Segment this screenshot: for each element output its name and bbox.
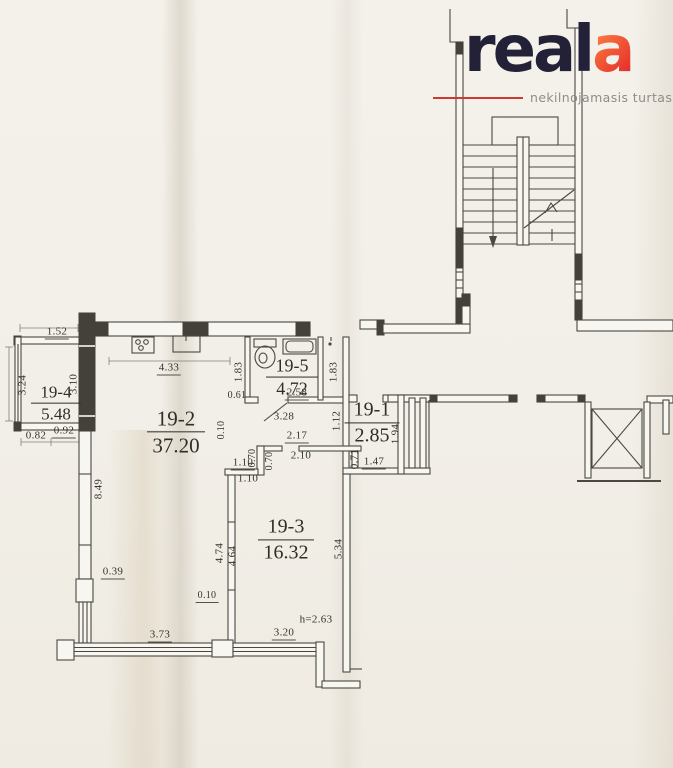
dim-label: 3.10 <box>69 374 80 394</box>
dim-label: 0.10 <box>196 591 219 603</box>
room-id: 19-3 <box>258 516 314 538</box>
exterior-window-walls <box>57 431 360 688</box>
logo-accent-letter: a <box>592 13 632 87</box>
reala-logo: reala <box>464 18 654 82</box>
dim-label: 0.82 <box>26 431 46 442</box>
dim-label: 1.52 <box>45 327 69 340</box>
dim-label: 0.39 <box>101 567 125 580</box>
fraction-bar <box>266 377 318 378</box>
logo-tagline: nekilnojamasis turtas <box>530 90 672 105</box>
fraction-bar <box>147 431 205 432</box>
room-area: 5.48 <box>31 406 81 424</box>
stair-direction-arrows <box>489 168 574 248</box>
room-area: 16.32 <box>258 542 314 564</box>
dim-label: 0.70 <box>265 452 275 471</box>
dim-label: 4.74 <box>215 543 226 563</box>
logo-tagline-row: nekilnojamasis turtas <box>433 90 643 105</box>
room-id: 19-2 <box>147 407 205 430</box>
room-label-19-2: 19-2 37.20 <box>147 407 205 456</box>
kitchen-sink-icon <box>173 336 200 352</box>
fraction-bar <box>258 539 314 540</box>
dim-label: 2.10 <box>291 451 311 462</box>
room-19-3-walls <box>228 474 362 672</box>
dim-label: h=2.63 <box>300 615 333 626</box>
room-area: 37.20 <box>147 434 205 457</box>
dim-label: 1.12 <box>332 411 343 431</box>
room-label-19-3: 19-3 16.32 <box>258 516 314 563</box>
dim-label: 0.61 <box>228 391 247 401</box>
room-id: 19-5 <box>266 357 318 376</box>
dim-label: 1.47 <box>362 457 386 470</box>
dim-label: 3.28 <box>274 412 294 423</box>
closet-mark <box>328 342 331 345</box>
wall <box>450 9 463 42</box>
dim-label: 0.92 <box>52 426 76 439</box>
dim-label: 5.34 <box>334 539 345 559</box>
tagline-rule <box>433 97 523 99</box>
dim-label: 3.20 <box>272 628 296 641</box>
dim-label: 4.33 <box>157 363 181 376</box>
room-id: 19-1 <box>345 399 400 421</box>
dim-label: 1.83 <box>234 362 245 382</box>
scanned-floorplan-page: 19-4 5.48 19-2 37.20 19-5 4.72 19-1 2.85… <box>0 0 673 768</box>
dim-label: 4.64 <box>228 546 239 566</box>
dim-label: 1.10 <box>238 474 258 485</box>
floorplan-drawing <box>0 0 673 768</box>
dim-label: 0.71 <box>350 449 361 469</box>
logo-wordmark: reala <box>464 18 654 82</box>
dim-label: 1.94 <box>391 424 402 444</box>
elevator-shaft <box>577 402 661 481</box>
dim-label: 2.58 <box>285 388 309 401</box>
cooktop-icon <box>132 337 154 353</box>
dim-label: 1.10 <box>231 458 255 471</box>
dim-label: 3.73 <box>148 630 172 643</box>
dim-label: 0.10 <box>217 421 227 440</box>
dim-label: 3.24 <box>18 375 29 395</box>
dim-label: 2.17 <box>285 431 309 444</box>
fraction-bar <box>31 403 81 404</box>
dim-label: 1.83 <box>329 362 340 382</box>
dim-label: 8.49 <box>94 479 105 499</box>
bathtub-icon <box>283 339 316 354</box>
